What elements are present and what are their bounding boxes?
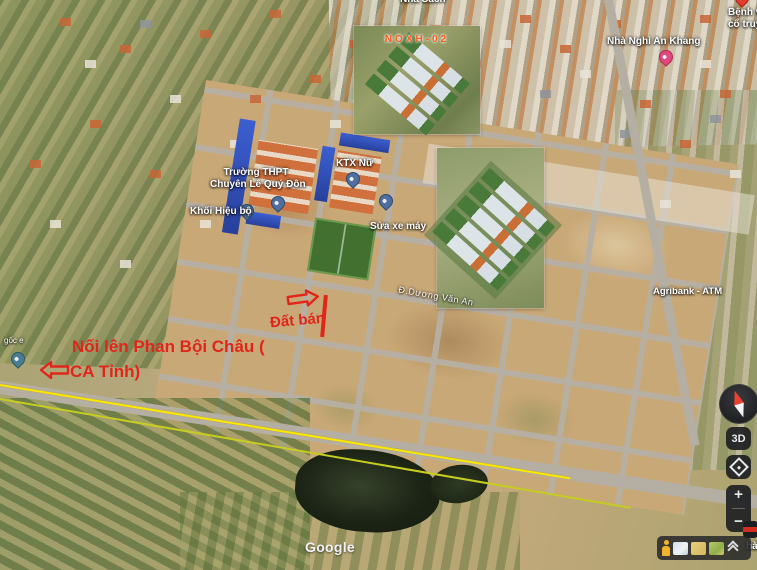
compass-icon[interactable] bbox=[719, 384, 757, 424]
pegman-icon[interactable] bbox=[662, 540, 670, 556]
poi-label-bike-repair[interactable]: Sửa xe máy bbox=[370, 221, 426, 232]
view-3d-button[interactable]: 3D bbox=[726, 427, 751, 450]
poi-label-school-line2: Chuyên Lê Quý Đôn bbox=[210, 179, 302, 191]
zoom-out-button[interactable]: − bbox=[734, 515, 743, 529]
google-watermark: Google bbox=[305, 539, 355, 555]
rooftops-texture bbox=[0, 0, 11, 8]
poi-label-school-line1: Trường THPT bbox=[210, 167, 302, 179]
render-building-cluster bbox=[424, 161, 562, 300]
inset-title: NOXH-02 bbox=[354, 34, 480, 45]
inset-render-large bbox=[437, 148, 544, 308]
inset-render-small: NOXH-02 bbox=[354, 26, 480, 134]
layer-thumbnail-2[interactable] bbox=[691, 542, 706, 555]
poi-label-hospital-partial[interactable]: Bệnh vi cổ truyề bbox=[728, 7, 757, 31]
zoom-divider bbox=[732, 508, 745, 509]
dorm-building-blue bbox=[339, 132, 390, 153]
top-edge-partial-label: Nhà Sách bbox=[400, 0, 446, 5]
poi-label-hospital-line2: cổ truyề bbox=[728, 19, 757, 31]
zoom-in-button[interactable]: + bbox=[734, 488, 743, 502]
poi-label-hospital-line1: Bệnh vi bbox=[728, 7, 757, 19]
street-view-diamond-icon bbox=[729, 457, 749, 477]
layer-thumbnail-3[interactable] bbox=[709, 542, 724, 555]
street-view-button[interactable] bbox=[726, 455, 751, 479]
compass-needle bbox=[730, 389, 748, 419]
route-note-line2: CA Tỉnh) bbox=[70, 362, 140, 382]
route-note-line1: Nối lên Phan Bội Châu ( bbox=[72, 337, 265, 357]
poi-label-school[interactable]: Trường THPT Chuyên Lê Quý Đôn bbox=[210, 167, 302, 191]
poi-label-atm[interactable]: Agribank - ATM bbox=[653, 286, 722, 297]
compass-south-pointer bbox=[734, 402, 748, 418]
layer-thumbnail-1[interactable] bbox=[673, 542, 688, 555]
expand-layers-button[interactable] bbox=[729, 544, 737, 552]
partial-marker-band bbox=[743, 527, 757, 532]
school-complex bbox=[211, 108, 404, 293]
layers-bar[interactable] bbox=[657, 536, 751, 560]
poi-label-guesthouse[interactable]: Nhà Nghỉ An Khang bbox=[607, 36, 701, 47]
small-left-label: gốc e bbox=[4, 336, 24, 345]
sports-field bbox=[307, 218, 377, 281]
poi-label-dorm[interactable]: KTX Nữ bbox=[336, 158, 373, 169]
left-arrow-icon bbox=[39, 359, 70, 382]
poi-label-admin-block[interactable]: Khối Hiệu bộ bbox=[190, 206, 252, 217]
satellite-map-canvas[interactable]: NOXH-02 Trường THPT Chuyên Lê Quý Đôn Kh… bbox=[0, 0, 757, 570]
